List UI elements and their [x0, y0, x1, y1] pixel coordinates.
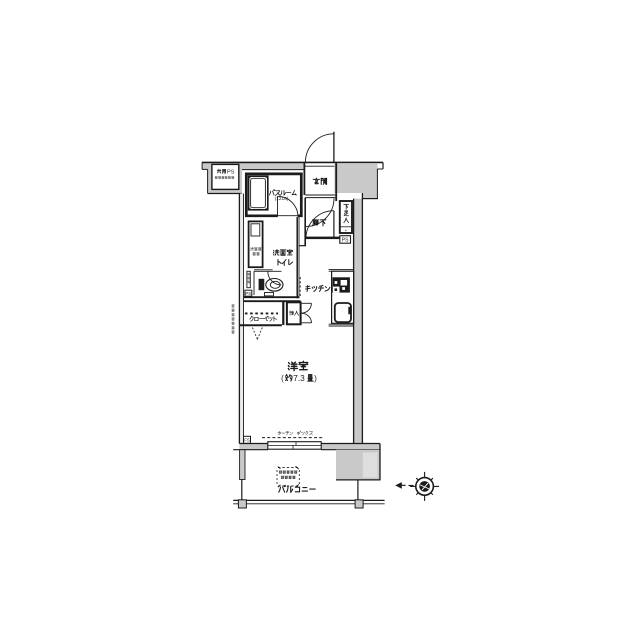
- svg-text:PS: PS: [245, 291, 251, 296]
- svg-text:FS: FS: [244, 437, 250, 442]
- svg-text:7.3: 7.3: [293, 373, 305, 383]
- svg-text:): ): [314, 374, 317, 383]
- svg-text:(: (: [281, 374, 284, 383]
- svg-text:PS: PS: [342, 238, 349, 244]
- svg-text:PS: PS: [227, 169, 235, 175]
- svg-text:+: +: [345, 228, 348, 233]
